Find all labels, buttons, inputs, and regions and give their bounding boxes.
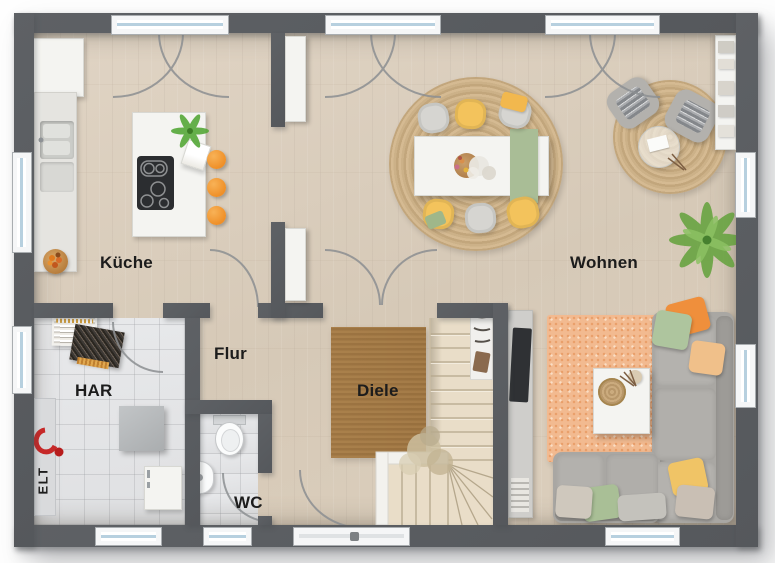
pillow-beige bbox=[555, 485, 593, 519]
rack-gold-row bbox=[56, 319, 93, 324]
wall-kueche-har bbox=[34, 303, 113, 318]
room-label-elt: ELT bbox=[36, 461, 51, 501]
room-label-kueche: Küche bbox=[100, 253, 153, 273]
window-wohnen-sued bbox=[605, 527, 680, 546]
centerpiece-bowl bbox=[454, 153, 479, 178]
table-runner bbox=[510, 129, 538, 203]
window-wc bbox=[203, 527, 252, 546]
room-label-wohnen: Wohnen bbox=[570, 253, 638, 273]
wall-right bbox=[736, 13, 758, 547]
window-wohnen-2 bbox=[735, 344, 756, 408]
bar-stool bbox=[207, 150, 226, 169]
kitchen-sink bbox=[40, 121, 74, 159]
window-har bbox=[12, 326, 32, 394]
wall-flur-pier bbox=[258, 303, 323, 318]
rattan-tray bbox=[598, 378, 626, 406]
room-label-wc: WC bbox=[234, 493, 263, 513]
window-kueche bbox=[12, 152, 32, 253]
pillow-gray bbox=[617, 492, 667, 521]
wall-left bbox=[14, 13, 34, 547]
tall-cabinet bbox=[285, 36, 306, 122]
bar-stool bbox=[207, 206, 226, 225]
tv-screen bbox=[509, 328, 532, 403]
fruit-bowl bbox=[43, 249, 68, 274]
wall-wc-pier bbox=[258, 516, 272, 525]
wall-stairs-wohnen bbox=[493, 303, 508, 525]
wall-stub-mid bbox=[271, 222, 285, 318]
media-stack bbox=[511, 478, 529, 512]
sofa-cushion bbox=[654, 388, 716, 460]
dining-chair bbox=[464, 202, 497, 234]
storage-box bbox=[119, 406, 164, 451]
room-label-flur: Flur bbox=[214, 344, 247, 364]
window-har-sued bbox=[95, 527, 162, 546]
dining-chair bbox=[454, 98, 487, 130]
sink-basin bbox=[43, 124, 70, 138]
floor-plan: Küche Wohnen Flur Diele HAR WC ELT bbox=[0, 0, 775, 563]
wall-kueche-flur bbox=[163, 303, 210, 318]
wall-wc-right bbox=[258, 414, 272, 473]
window-wohnen-1 bbox=[735, 152, 756, 218]
room-label-diele: Diele bbox=[357, 381, 399, 401]
door-handle bbox=[350, 532, 359, 541]
wall-har-right bbox=[185, 318, 200, 525]
pillow-peach bbox=[688, 340, 726, 376]
tall-cabinet bbox=[285, 228, 306, 301]
pillow-taupe bbox=[674, 484, 715, 520]
table-deco bbox=[628, 370, 642, 384]
fridge-cabinet bbox=[33, 38, 84, 97]
sink-basin bbox=[43, 141, 70, 155]
french-door-wohnen bbox=[545, 15, 660, 35]
books bbox=[647, 135, 670, 152]
french-door-essen bbox=[325, 15, 441, 35]
washing-machine bbox=[144, 466, 182, 510]
glass-side-table bbox=[638, 126, 680, 168]
toilet-bowl bbox=[221, 429, 240, 452]
wall-stub-top bbox=[271, 33, 285, 127]
entrance-door bbox=[293, 527, 410, 546]
bookshelf bbox=[715, 35, 736, 150]
wall-wc-top bbox=[185, 400, 272, 414]
bar-stool bbox=[207, 178, 226, 197]
pillow-green bbox=[651, 309, 693, 351]
doormat bbox=[69, 324, 124, 368]
counter-module bbox=[40, 162, 74, 192]
toilet bbox=[215, 422, 244, 456]
room-label-har: HAR bbox=[75, 381, 112, 401]
cooktop bbox=[137, 156, 174, 210]
french-door-kueche bbox=[111, 15, 229, 35]
